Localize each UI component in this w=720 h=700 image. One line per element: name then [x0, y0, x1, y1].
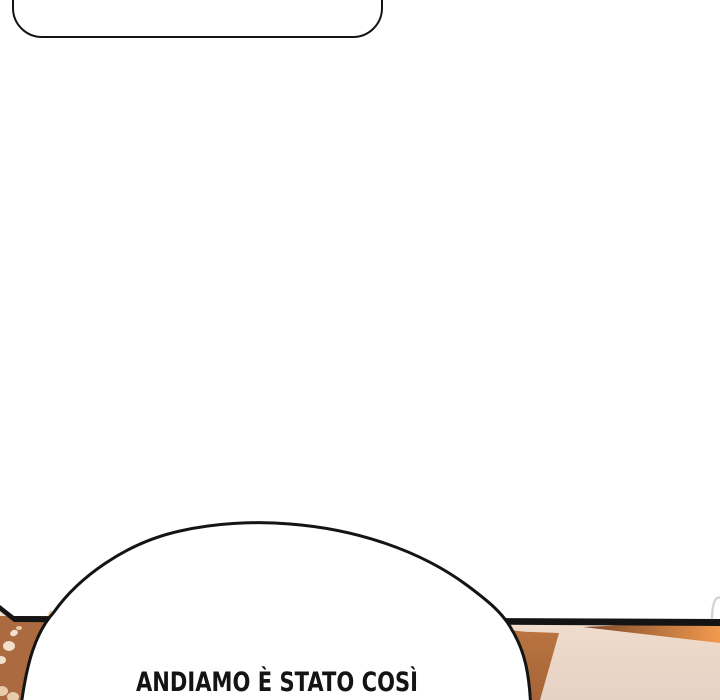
- bottom-speech-bubble-text: ANDIAMO È STATO COSÌ: [121, 667, 433, 698]
- hair-dot: [16, 626, 22, 630]
- comic-panel: ANDIAMO È STATO COSÌ: [0, 0, 720, 700]
- paper-corner-outline: [712, 598, 720, 619]
- hair-dot: [3, 641, 15, 651]
- scene-artwork: [0, 0, 720, 700]
